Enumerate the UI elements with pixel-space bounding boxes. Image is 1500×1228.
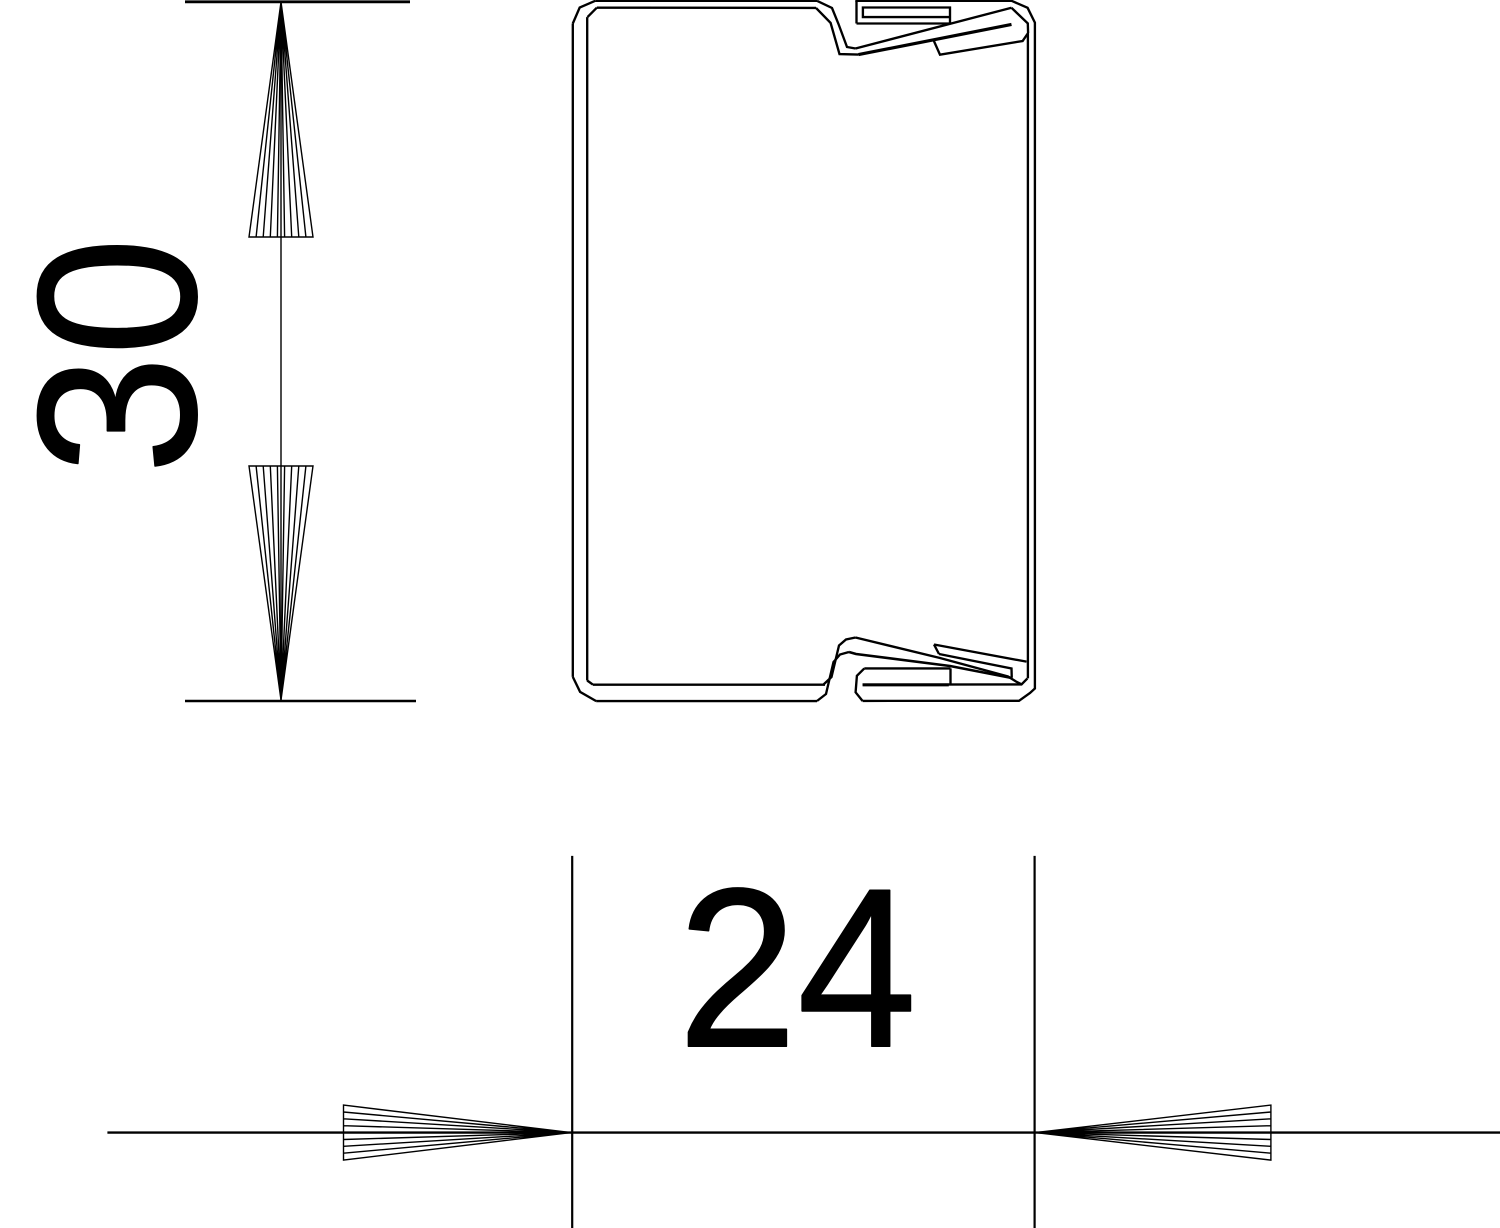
svg-text:30: 30: [0, 237, 243, 474]
svg-text:24: 24: [678, 841, 917, 1094]
